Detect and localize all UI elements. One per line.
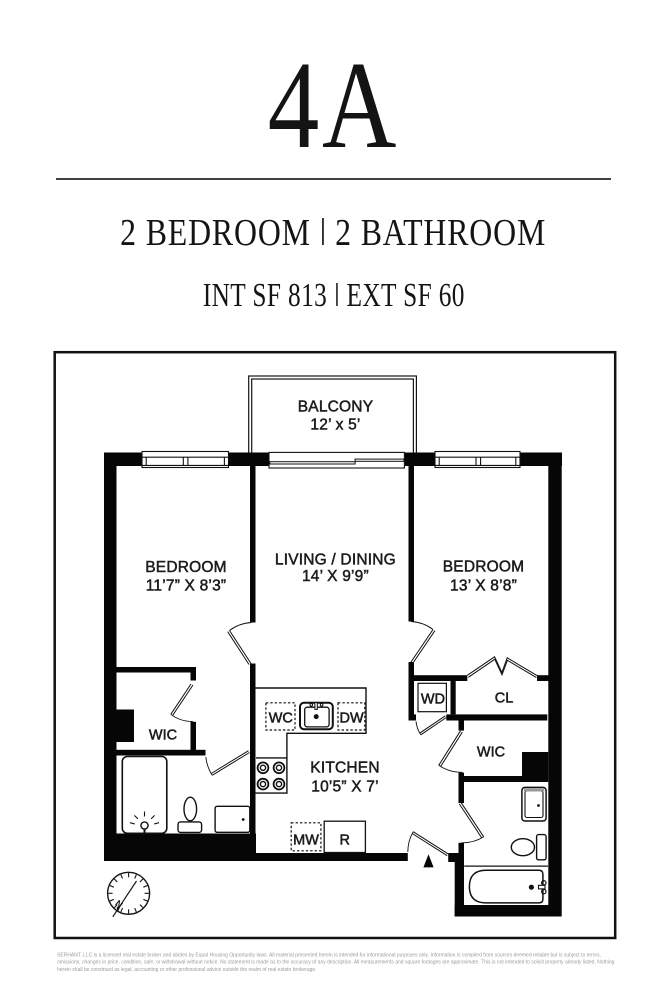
- svg-text:KITCHEN: KITCHEN: [310, 759, 379, 776]
- svg-text:N: N: [113, 898, 124, 910]
- svg-text:WD: WD: [421, 692, 445, 708]
- svg-text:MW: MW: [293, 832, 319, 848]
- svg-text:12’ x 5’: 12’ x 5’: [310, 416, 360, 433]
- svg-text:BALCONY: BALCONY: [298, 398, 373, 415]
- svg-text:DW: DW: [340, 711, 364, 727]
- svg-text:CL: CL: [495, 691, 514, 707]
- svg-text:13’ X 8’8”: 13’ X 8’8”: [450, 578, 517, 595]
- svg-text:14’ X 9’9”: 14’ X 9’9”: [302, 568, 369, 585]
- svg-text:BEDROOM: BEDROOM: [443, 559, 525, 576]
- svg-text:WC: WC: [269, 711, 293, 727]
- svg-text:11’7” X 8’3”: 11’7” X 8’3”: [146, 577, 227, 594]
- svg-text:R: R: [340, 832, 350, 848]
- svg-text:WIC: WIC: [149, 728, 177, 744]
- svg-text:WIC: WIC: [477, 744, 505, 760]
- svg-text:BEDROOM: BEDROOM: [145, 559, 227, 576]
- svg-text:LIVING / DINING: LIVING / DINING: [275, 551, 396, 568]
- svg-text:10’5” X 7’: 10’5” X 7’: [311, 779, 378, 796]
